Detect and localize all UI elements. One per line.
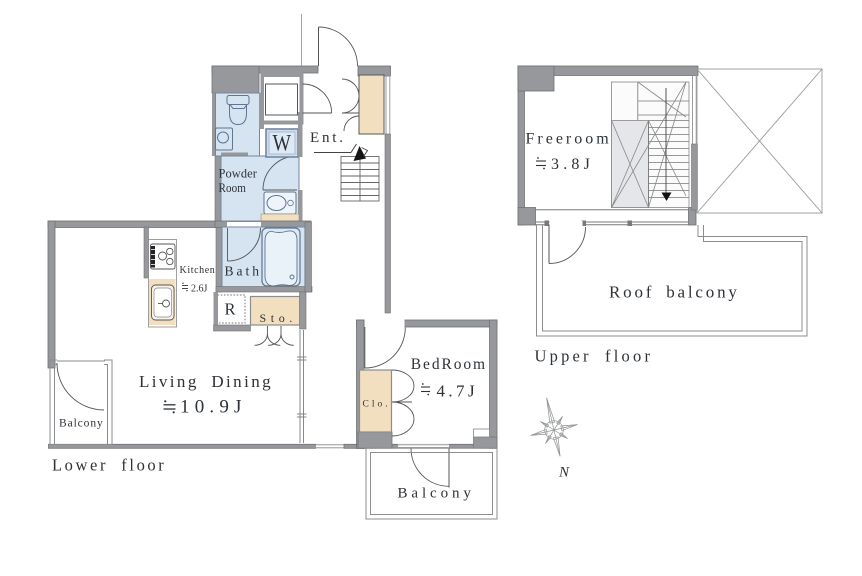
svg-text:W: W bbox=[273, 131, 292, 156]
svg-text:Balcony: Balcony bbox=[59, 418, 104, 430]
svg-text:Kitchen: Kitchen bbox=[180, 265, 216, 276]
svg-text:Lower floor: Lower floor bbox=[52, 456, 166, 475]
svg-text:Upper floor: Upper floor bbox=[535, 347, 654, 366]
svg-text:Balcony: Balcony bbox=[398, 486, 475, 502]
svg-text:N: N bbox=[558, 465, 570, 481]
svg-text:BedRoom: BedRoom bbox=[411, 356, 487, 373]
svg-text:10.9J: 10.9J bbox=[180, 397, 247, 418]
svg-text:2.6J: 2.6J bbox=[191, 284, 208, 295]
svg-text:Living Dining: Living Dining bbox=[139, 372, 273, 391]
svg-text:Freeroom: Freeroom bbox=[526, 131, 612, 148]
svg-text:Bath: Bath bbox=[225, 264, 263, 279]
svg-text:Room: Room bbox=[219, 180, 247, 195]
svg-text:R: R bbox=[225, 300, 237, 319]
svg-text:Clo.: Clo. bbox=[363, 399, 391, 409]
svg-text:Powder: Powder bbox=[219, 166, 258, 181]
svg-text:Sto.: Sto. bbox=[260, 311, 297, 325]
svg-text:Roof balcony: Roof balcony bbox=[609, 283, 740, 302]
svg-text:4.7J: 4.7J bbox=[437, 382, 478, 401]
svg-text:Ent.: Ent. bbox=[310, 130, 346, 146]
svg-text:3.8J: 3.8J bbox=[551, 156, 594, 173]
